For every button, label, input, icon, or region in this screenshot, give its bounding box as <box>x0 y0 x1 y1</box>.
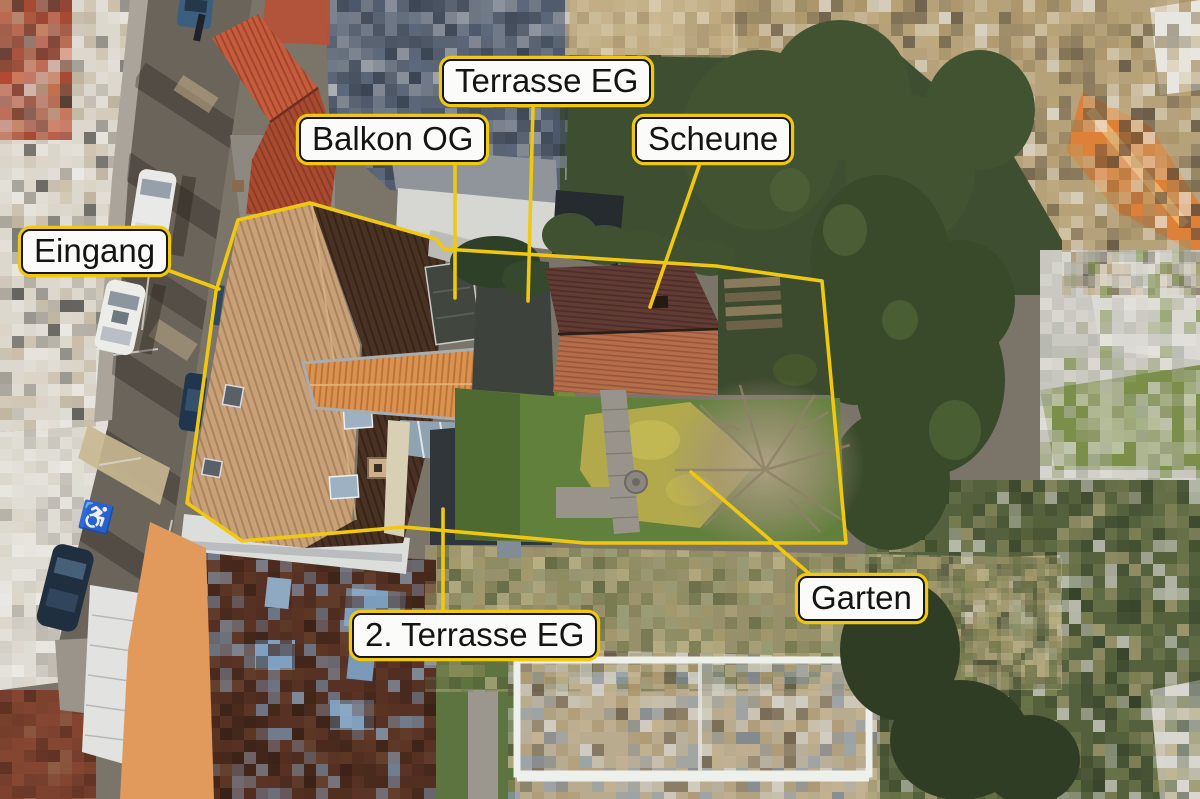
label-scheune: Scheune <box>635 117 791 162</box>
mosaic-region <box>1040 250 1200 490</box>
label-balkon-og: Balkon OG <box>299 117 486 162</box>
barn-scheune <box>545 262 722 396</box>
aerial-photo: ♿ <box>0 0 1200 799</box>
label-eingang: Eingang <box>21 229 168 274</box>
aerial-photo-svg: ♿ <box>0 0 1200 799</box>
label-terrasse2-eg: 2. Terrasse EG <box>352 613 597 658</box>
label-garten: Garten <box>798 576 925 621</box>
label-terrasse-eg: Terrasse EG <box>442 59 651 104</box>
